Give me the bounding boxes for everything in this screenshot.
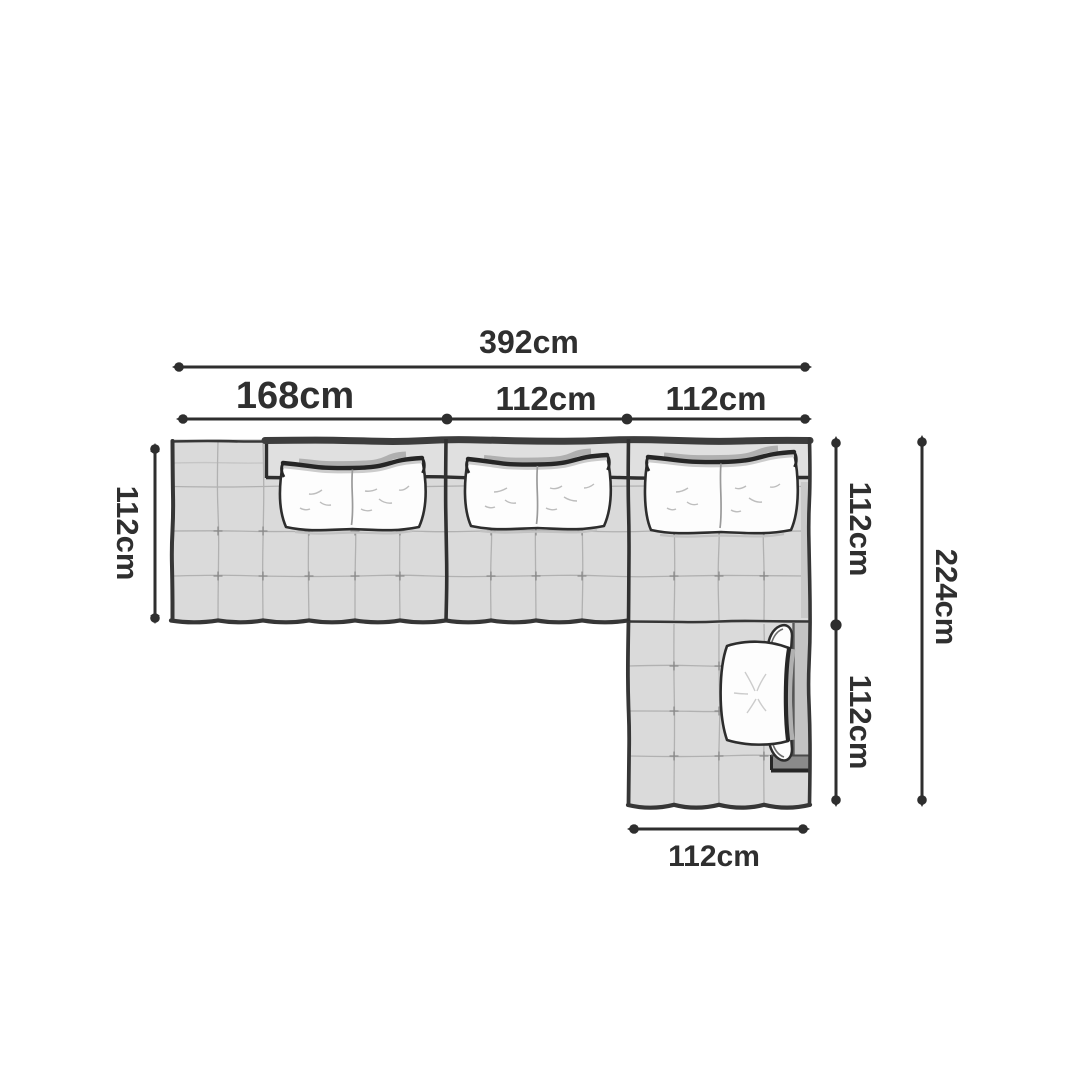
- svg-text:392cm: 392cm: [479, 324, 579, 360]
- svg-text:112cm: 112cm: [666, 380, 767, 417]
- svg-text:224cm: 224cm: [929, 549, 964, 646]
- svg-text:112cm: 112cm: [668, 840, 760, 873]
- svg-text:168cm: 168cm: [236, 375, 354, 417]
- svg-text:112cm: 112cm: [843, 675, 878, 770]
- svg-text:112cm: 112cm: [110, 486, 145, 581]
- svg-text:112cm: 112cm: [496, 380, 597, 417]
- svg-text:112cm: 112cm: [843, 482, 878, 577]
